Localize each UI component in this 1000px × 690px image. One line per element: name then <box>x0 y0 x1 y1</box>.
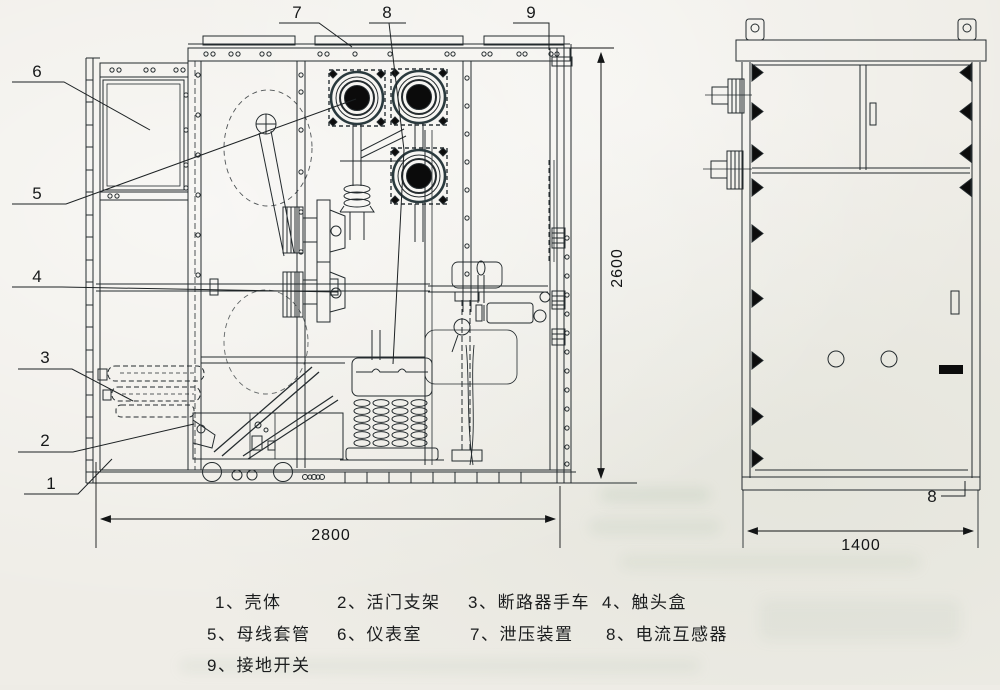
callout-leaders <box>12 23 965 496</box>
busbar-stub <box>703 79 752 189</box>
busbar-bushing-symbols <box>329 69 447 204</box>
callout-7: 7 <box>292 3 301 22</box>
panel-hole <box>881 351 897 367</box>
lifting-lugs <box>746 19 976 40</box>
callout-8: 8 <box>382 3 391 22</box>
rear-handle <box>951 291 959 314</box>
callout-numbers: 7 8 9 6 5 4 3 2 1 8 <box>32 3 936 506</box>
dim-side-width: 1400 <box>841 537 881 554</box>
contact-box <box>303 200 345 322</box>
callout-8-side: 8 <box>927 487 936 506</box>
wall-wedges <box>752 64 971 467</box>
rivet-dots <box>110 52 559 72</box>
bellows <box>283 207 303 317</box>
callout-4: 4 <box>32 267 41 286</box>
callout-2: 2 <box>40 431 49 450</box>
panel-hole <box>828 351 844 367</box>
breaker-truck <box>98 366 343 482</box>
side-elevation-view <box>703 19 986 548</box>
drawing-sheet: 7 8 9 6 5 4 3 2 1 8 2800 2600 1400 <box>0 0 1000 685</box>
dim-front-height: 2600 <box>609 248 626 288</box>
callout-6: 6 <box>32 62 41 81</box>
dim-front-width: 2800 <box>311 527 351 544</box>
callout-3: 3 <box>40 348 49 367</box>
callout-5: 5 <box>32 184 41 203</box>
top-beam <box>736 40 986 61</box>
floor-rails <box>308 472 521 483</box>
callout-9: 9 <box>526 3 535 22</box>
instrument-room <box>100 80 188 200</box>
door-handle <box>870 103 876 125</box>
nameplate-bar <box>939 365 963 374</box>
ct-fins <box>354 400 427 447</box>
callout-1: 1 <box>46 474 55 493</box>
earthing-switch <box>425 261 548 465</box>
technical-drawing: 7 8 9 6 5 4 3 2 1 8 2800 2600 1400 <box>0 0 1000 685</box>
current-transformer <box>340 330 444 460</box>
rear-wall-detail <box>540 160 569 466</box>
dimension-lines <box>96 48 973 548</box>
front-section-view <box>86 36 637 483</box>
